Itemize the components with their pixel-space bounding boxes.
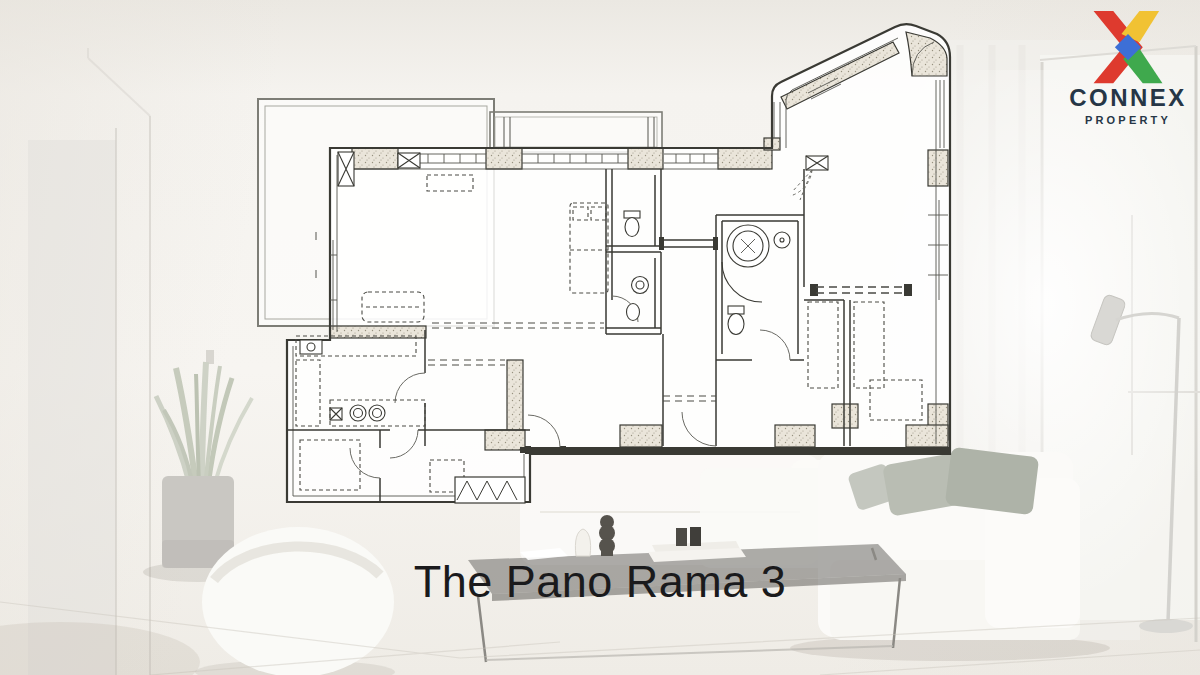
sofa-cushion bbox=[945, 447, 1039, 515]
brand-name: CONNEX bbox=[1064, 86, 1192, 110]
wall-sconce bbox=[206, 350, 214, 364]
bottom-wall bbox=[520, 447, 950, 453]
bookend bbox=[690, 527, 701, 546]
logo: CONNEX PROPERTY bbox=[1064, 10, 1192, 126]
floor-plan bbox=[258, 24, 950, 503]
corner-shadow bbox=[0, 622, 200, 675]
connex-x-icon bbox=[1087, 10, 1169, 86]
marketing-image: CONNEX PROPERTY The Pano Rama 3 bbox=[0, 0, 1200, 675]
shoe-cabinet bbox=[455, 477, 525, 503]
brand-tagline: PROPERTY bbox=[1064, 114, 1192, 126]
vase bbox=[575, 529, 590, 556]
bookend bbox=[676, 528, 687, 546]
sculpture bbox=[599, 515, 615, 556]
balcony-strip bbox=[490, 112, 662, 152]
project-title: The Pano Rama 3 bbox=[414, 556, 787, 608]
